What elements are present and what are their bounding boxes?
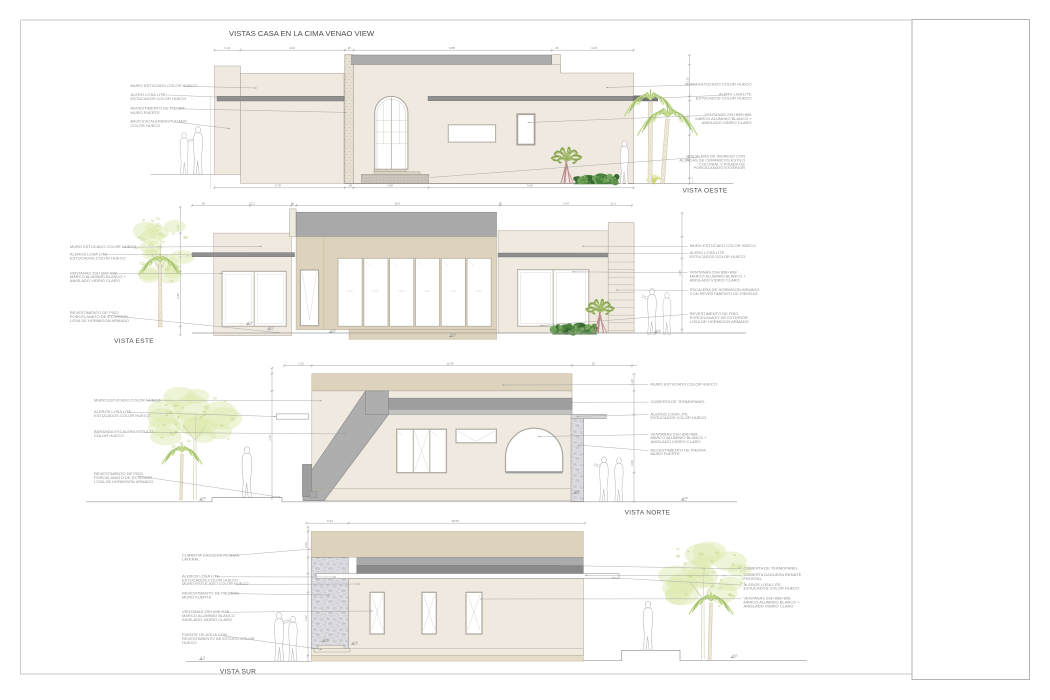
svg-text:.25: .25 [591, 362, 596, 366]
svg-text:MURO ESTUCADO COLOR HUECO: MURO ESTUCADO COLOR HUECO [651, 381, 717, 386]
svg-text:12.1: 12.1 [249, 202, 255, 206]
svg-text:2.04: 2.04 [563, 202, 569, 206]
svg-text:CUBIERTA DE TERMOPANEL: CUBIERTA DE TERMOPANEL [744, 566, 799, 571]
svg-text:VISTA NORTE: VISTA NORTE [625, 510, 671, 517]
svg-text:MURO ESTUCADO COLOR HUECO: MURO ESTUCADO COLOR HUECO [685, 81, 751, 86]
svg-text:5.70: 5.70 [275, 184, 281, 188]
svg-text:ESTUCADOS COLOR HUECO: ESTUCADOS COLOR HUECO [696, 96, 752, 101]
svg-text:LOSA DE HORMIGON ARMADO: LOSA DE HORMIGON ARMADO [70, 318, 129, 323]
svg-text:MURO ESTUCADO COLOR HUECO: MURO ESTUCADO COLOR HUECO [70, 244, 136, 249]
svg-text:ANISLADO VIDRIO CLARO: ANISLADO VIDRIO CLARO [651, 439, 701, 444]
svg-text:.25: .25 [347, 46, 352, 50]
svg-text:MURO FUERTE: MURO FUERTE [651, 451, 681, 456]
svg-text:.25: .25 [290, 202, 295, 206]
svg-text:4.93: 4.93 [289, 46, 295, 50]
svg-text:3.25: 3.25 [591, 46, 597, 50]
svg-text:2.80: 2.80 [387, 184, 393, 188]
svg-text:4.45: 4.45 [268, 435, 272, 441]
svg-text:ESTUCADOS COLOR HUECO: ESTUCADOS COLOR HUECO [131, 96, 187, 101]
svg-text:MURO FUERTE: MURO FUERTE [182, 594, 212, 599]
svg-text:ESTUCADOS COLOR HUECO: ESTUCADOS COLOR HUECO [690, 254, 746, 259]
svg-text:MURO ESTUCADO COLOR HUECO: MURO ESTUCADO COLOR HUECO [182, 581, 248, 586]
svg-text:LOSA DE HORMIGON ARMADO: LOSA DE HORMIGON ARMADO [94, 479, 153, 484]
svg-text:3.08: 3.08 [630, 460, 634, 466]
svg-text:0.90: 0.90 [304, 542, 308, 548]
svg-text:11.80: 11.80 [446, 362, 454, 366]
svg-text:ESTUCADOS COLOR HUECO: ESTUCADOS COLOR HUECO [744, 586, 800, 591]
svg-text:MURO ESTUCADO COLOR HUECO: MURO ESTUCADO COLOR HUECO [94, 397, 160, 402]
svg-text:VISTA OESTE: VISTA OESTE [682, 187, 727, 194]
svg-text:ESTUCADOS COLOR HUECO: ESTUCADOS COLOR HUECO [651, 415, 707, 420]
svg-text:VISTA SUR: VISTA SUR [220, 668, 256, 675]
svg-text:1.10: 1.10 [224, 46, 230, 50]
svg-text:9.85: 9.85 [449, 46, 455, 50]
svg-text:1.92: 1.92 [298, 362, 304, 366]
svg-text:CON REVESTIMIENTO DE PIEDRAS: CON REVESTIMIENTO DE PIEDRAS [690, 291, 758, 296]
svg-text:.25: .25 [498, 202, 503, 206]
svg-text:LOSA DE HORMIGON ARMADO: LOSA DE HORMIGON ARMADO [690, 319, 749, 324]
svg-text:1.28: 1.28 [630, 379, 634, 385]
svg-text:FRONTAL: FRONTAL [744, 576, 763, 581]
svg-text:MURO ESTUCADO COLOR HUECO: MURO ESTUCADO COLOR HUECO [690, 243, 756, 248]
svg-text:ANISLADO VIDRIO CLARO: ANISLADO VIDRIO CLARO [744, 603, 794, 608]
svg-text:MURO FUERTE: MURO FUERTE [131, 110, 161, 115]
svg-text:HUECO: HUECO [182, 640, 196, 645]
svg-text:ANISLADO VIDRIO CLARO: ANISLADO VIDRIO CLARO [690, 277, 740, 282]
svg-text:MURO ESTUCADO COLOR HUECO: MURO ESTUCADO COLOR HUECO [131, 83, 197, 88]
svg-text:ESTUCADOS COLOR HUECO: ESTUCADOS COLOR HUECO [70, 255, 126, 260]
svg-text:VISTA ESTE: VISTA ESTE [114, 338, 154, 345]
svg-text:CUBIERTA DE TERMOPANEL: CUBIERTA DE TERMOPANEL [651, 399, 706, 404]
svg-text:PORCELANATO EXTERIOR: PORCELANATO EXTERIOR [694, 165, 746, 170]
svg-text:.60: .60 [348, 184, 353, 188]
svg-text:18.9: 18.9 [394, 202, 400, 206]
svg-text:18.55: 18.55 [451, 519, 459, 523]
svg-text:VISTAS CASA EN LA CIMA VENAO V: VISTAS CASA EN LA CIMA VENAO VIEW [229, 29, 375, 38]
svg-text:5.91: 5.91 [327, 519, 333, 523]
svg-text:2.80: 2.80 [176, 293, 180, 299]
svg-text:2.87: 2.87 [304, 615, 308, 621]
svg-text:COLOR HUECO: COLOR HUECO [94, 433, 124, 438]
svg-text:ANISLADO VIDRIO CLARO: ANISLADO VIDRIO CLARO [701, 120, 751, 125]
svg-text:.25: .25 [554, 46, 559, 50]
svg-text:COLOR HUECO: COLOR HUECO [131, 123, 161, 128]
svg-text:ESTUCADOS COLOR HUECO: ESTUCADOS COLOR HUECO [94, 413, 150, 418]
svg-text:LATERAL: LATERAL [182, 556, 200, 561]
svg-text:10.1: 10.1 [610, 202, 616, 206]
svg-text:ANISLADO VIDRIO CLARO: ANISLADO VIDRIO CLARO [182, 617, 232, 622]
svg-text:9.60: 9.60 [527, 184, 533, 188]
svg-text:ANISLADO VIDRIO CLARO: ANISLADO VIDRIO CLARO [70, 278, 120, 283]
svg-text:.36: .36 [201, 202, 206, 206]
